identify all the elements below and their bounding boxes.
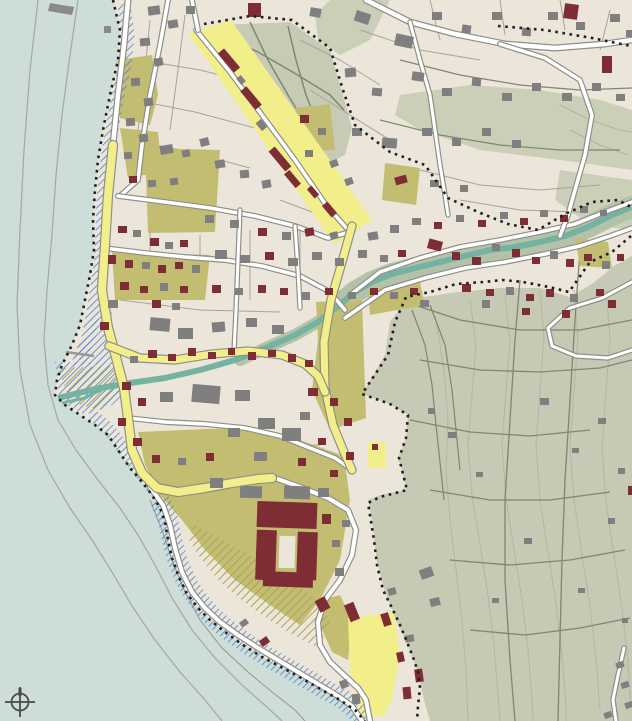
- building-gray: [550, 251, 558, 259]
- building-gray: [472, 78, 482, 87]
- building-gray: [230, 220, 239, 228]
- building-red: [410, 288, 418, 295]
- building-red: [152, 455, 160, 463]
- building-gray: [258, 418, 275, 429]
- building-gray: [522, 28, 532, 37]
- building-gray: [460, 185, 468, 192]
- building-gray: [165, 242, 173, 249]
- building-gray: [240, 486, 262, 499]
- building-gray: [442, 88, 452, 96]
- building-gray: [131, 78, 141, 87]
- building-gray: [246, 318, 257, 327]
- building-gray: [254, 452, 267, 461]
- building-gray: [309, 7, 321, 18]
- building-gray: [428, 408, 435, 414]
- building-gray: [318, 488, 329, 497]
- building-red: [546, 289, 554, 297]
- building-red: [138, 398, 146, 406]
- building-gray: [160, 283, 168, 291]
- building-gray: [335, 568, 344, 576]
- building-gray: [570, 294, 578, 302]
- building-gray: [210, 478, 223, 488]
- building-gray: [160, 392, 173, 402]
- building-gray: [130, 356, 138, 363]
- building-red: [258, 285, 266, 293]
- building-gray: [138, 133, 148, 142]
- building-gray: [578, 588, 585, 593]
- building-gray: [380, 255, 388, 262]
- building-gray: [540, 210, 548, 217]
- building-red: [206, 453, 214, 461]
- building-red: [434, 222, 442, 229]
- building-gray: [167, 19, 178, 29]
- building-red: [148, 350, 157, 358]
- building-gray: [186, 6, 195, 14]
- building-gray: [456, 215, 464, 222]
- building-gray: [312, 252, 322, 260]
- building-red: [608, 300, 616, 308]
- building-gray: [228, 428, 240, 437]
- building-gray: [562, 93, 572, 101]
- building-gray: [500, 212, 508, 219]
- building-gray: [448, 432, 456, 438]
- building-gray: [348, 292, 356, 299]
- building-gray: [411, 71, 424, 82]
- building-red: [118, 418, 126, 426]
- building-gray: [240, 255, 250, 263]
- building-gray: [124, 152, 132, 160]
- building-gray: [302, 292, 310, 300]
- building-red: [122, 382, 131, 390]
- building-red: [472, 257, 481, 265]
- building-red: [180, 240, 188, 247]
- building-gray: [506, 287, 514, 295]
- building-red: [318, 438, 326, 445]
- building-gray: [345, 68, 357, 78]
- building-red: [344, 418, 352, 426]
- building-gray: [482, 300, 490, 308]
- building-red: [180, 286, 188, 293]
- building-gray: [284, 486, 310, 500]
- building-red: [478, 220, 486, 227]
- building-red: [330, 470, 338, 477]
- building-gray: [282, 428, 301, 441]
- building-red: [402, 687, 411, 700]
- building-red: [133, 438, 142, 446]
- courtyard: [278, 536, 295, 569]
- building-gray: [178, 458, 186, 465]
- building-red: [280, 288, 288, 295]
- building-red: [263, 571, 313, 588]
- building-red: [188, 348, 196, 356]
- building-red: [150, 238, 159, 246]
- building-gray: [432, 12, 442, 20]
- building-red: [158, 265, 166, 273]
- building-gray: [148, 180, 157, 188]
- building-red: [596, 289, 604, 296]
- building-gray: [476, 472, 483, 477]
- building-red: [304, 227, 314, 236]
- building-red: [398, 250, 406, 257]
- building-gray: [332, 540, 340, 547]
- building-red: [602, 56, 612, 73]
- building-red: [617, 254, 624, 261]
- building-gray: [622, 618, 628, 623]
- building-red: [212, 285, 221, 293]
- building-red: [140, 286, 148, 293]
- building-red: [522, 308, 530, 315]
- building-gray: [192, 265, 200, 273]
- building-gray: [191, 384, 220, 404]
- building-gray: [352, 694, 361, 705]
- building-red: [325, 288, 333, 295]
- building-gray: [133, 230, 141, 237]
- building-red: [175, 262, 183, 269]
- building-gray: [300, 412, 310, 420]
- building-gray: [126, 118, 136, 127]
- building-gray: [153, 57, 163, 66]
- building-gray: [235, 288, 243, 295]
- building-red: [208, 352, 216, 359]
- building-red: [628, 486, 632, 495]
- building-red: [298, 458, 306, 466]
- building-red: [248, 352, 256, 360]
- map-viewport[interactable]: [0, 0, 632, 721]
- building-red: [486, 289, 494, 296]
- building-gray: [626, 30, 632, 37]
- building-gray: [147, 5, 160, 16]
- building-red: [563, 3, 579, 20]
- building-red: [108, 255, 116, 264]
- building-gray: [618, 468, 625, 474]
- building-gray: [235, 390, 250, 401]
- building-red: [300, 115, 309, 123]
- map-layers: [0, 0, 632, 721]
- building-gray: [452, 138, 461, 146]
- building-gray: [215, 250, 227, 259]
- building-red: [268, 350, 276, 357]
- building-gray: [492, 598, 499, 603]
- building-gray: [540, 398, 549, 405]
- building-gray: [524, 538, 532, 544]
- building-red: [129, 176, 137, 183]
- building-gray: [342, 520, 350, 527]
- building-red: [168, 354, 176, 361]
- building-red: [100, 322, 109, 330]
- building-gray: [390, 225, 399, 233]
- building-gray: [288, 258, 298, 266]
- building-gray: [390, 292, 398, 299]
- building-red: [346, 452, 354, 460]
- building-red: [257, 501, 318, 529]
- building-red: [228, 348, 235, 355]
- building-red: [322, 514, 331, 524]
- building-gray: [212, 321, 226, 332]
- building-red: [566, 259, 574, 267]
- building-gray: [272, 325, 284, 334]
- building-gray: [420, 300, 429, 307]
- building-red: [462, 284, 471, 292]
- building-red: [125, 260, 133, 268]
- building-red: [512, 249, 520, 257]
- building-red: [118, 226, 127, 233]
- building-red: [308, 388, 318, 396]
- building-gray: [610, 14, 620, 22]
- building-gray: [240, 170, 250, 179]
- building-gray: [335, 258, 344, 266]
- building-gray: [608, 518, 615, 524]
- building-gray: [422, 128, 432, 136]
- building-red: [372, 444, 378, 450]
- building-gray: [576, 22, 585, 30]
- building-gray: [367, 231, 378, 241]
- building-gray: [461, 24, 471, 33]
- building-red: [288, 354, 296, 362]
- building-red: [562, 310, 570, 318]
- building-red: [258, 228, 267, 236]
- building-gray: [492, 244, 500, 251]
- building-gray: [482, 128, 491, 136]
- boathouse: [104, 26, 111, 33]
- building-gray: [261, 179, 271, 188]
- building-red: [584, 254, 592, 261]
- building-gray: [616, 94, 625, 101]
- building-gray: [178, 328, 193, 339]
- building-gray: [548, 12, 558, 20]
- building-gray: [358, 250, 367, 258]
- building-red: [520, 218, 528, 225]
- building-gray: [108, 300, 118, 308]
- building-red: [248, 3, 261, 17]
- building-red: [532, 257, 540, 264]
- building-gray: [318, 128, 326, 135]
- building-red: [120, 282, 129, 290]
- building-gray: [140, 38, 151, 47]
- building-gray: [170, 177, 179, 185]
- building-gray: [372, 88, 383, 97]
- building-gray: [214, 159, 225, 169]
- building-gray: [532, 83, 541, 91]
- building-red: [265, 252, 274, 260]
- building-gray: [143, 97, 153, 106]
- building-red: [526, 294, 534, 301]
- building-gray: [412, 218, 421, 225]
- building-gray: [598, 418, 606, 424]
- building-red: [305, 360, 313, 367]
- map-canvas[interactable]: [0, 0, 632, 721]
- building-gray: [592, 83, 601, 91]
- building-red: [152, 300, 161, 308]
- building-red: [330, 398, 338, 406]
- building-red: [370, 288, 378, 295]
- building-gray: [600, 210, 607, 216]
- building-gray: [205, 215, 214, 223]
- building-red: [452, 252, 460, 260]
- building-gray: [572, 448, 579, 453]
- building-gray: [305, 150, 313, 157]
- building-gray: [282, 232, 291, 240]
- building-gray: [502, 93, 512, 101]
- building-gray: [149, 317, 170, 332]
- building-gray: [172, 303, 180, 310]
- building-gray: [142, 262, 150, 269]
- building-gray: [492, 12, 502, 20]
- building-gray: [602, 261, 610, 269]
- building-gray: [512, 140, 521, 148]
